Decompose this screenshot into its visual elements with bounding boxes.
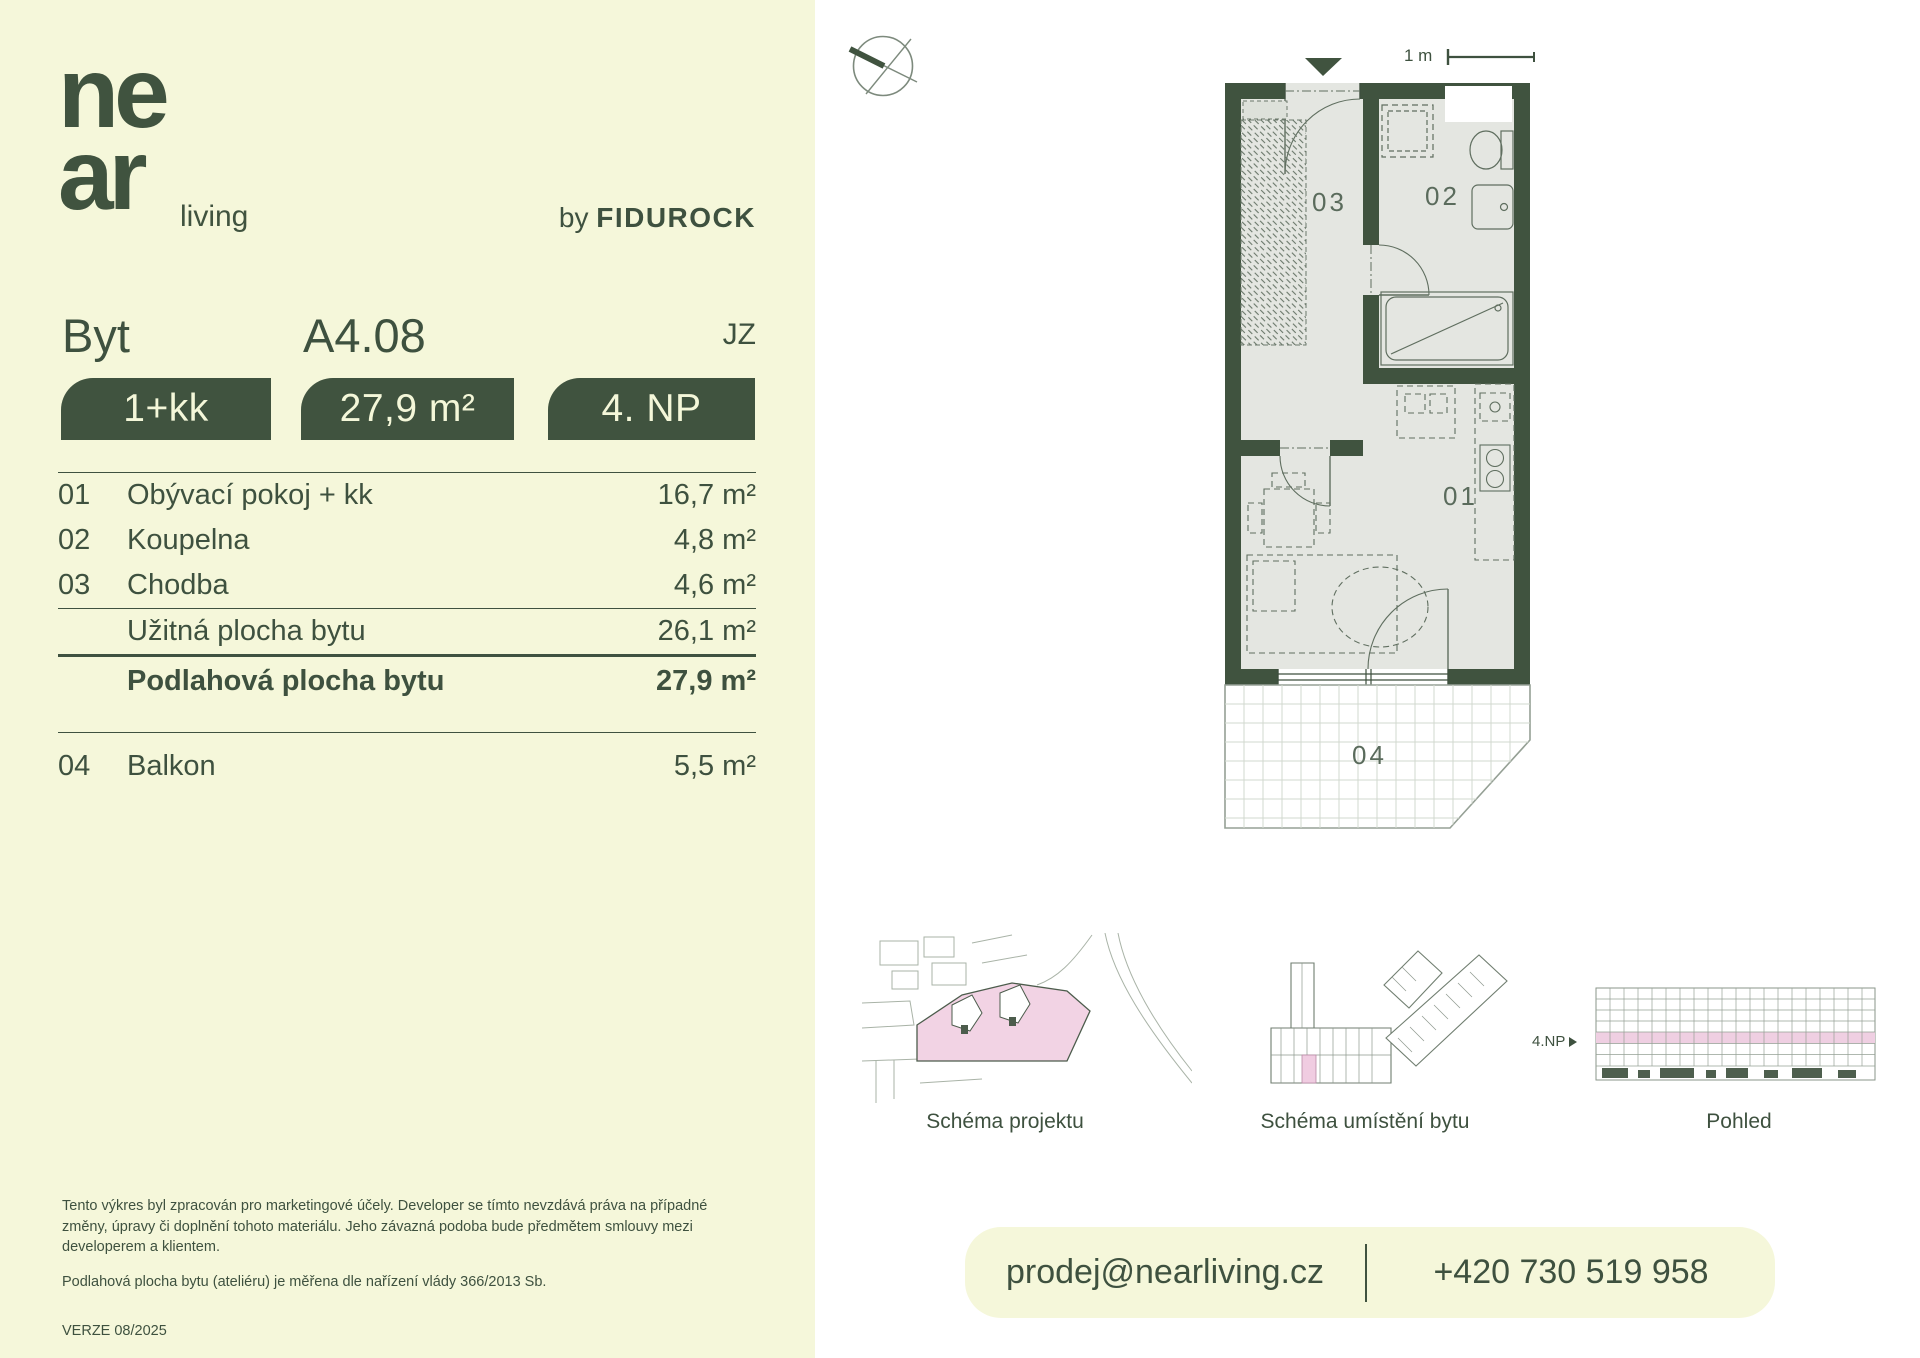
disclaimer: Tento výkres byl zpracován pro marketing…: [62, 1196, 720, 1342]
floor-marker: 4.NP: [1532, 1033, 1577, 1050]
room-name: Koupelna: [127, 524, 674, 557]
unit-location-schematic: [1266, 943, 1511, 1111]
orientation-label: JZ: [0, 318, 756, 352]
room-name: Chodba: [127, 569, 674, 602]
room-number: 04: [58, 750, 127, 783]
wardrobe: [1241, 120, 1306, 345]
contact-bar: prodej@nearliving.cz +420 730 519 958: [965, 1227, 1775, 1318]
label-room-03: 03: [1312, 187, 1347, 217]
near-logo: ne ar: [58, 52, 165, 216]
floor-area-value: 27,9 m²: [656, 665, 756, 698]
usable-area-label: Užitná plocha bytu: [127, 615, 658, 648]
site-plan-schematic: [862, 933, 1192, 1105]
apartment-datasheet: ne ar living by FIDUROCK Byt A4.08 JZ 1+…: [0, 0, 1920, 1358]
area-table: 01 Obývací pokoj + kk 16,7 m² 02 Koupeln…: [58, 472, 756, 791]
label-room-02: 02: [1425, 181, 1460, 211]
room-area: 4,8 m²: [674, 524, 756, 557]
floor-area-label: Podlahová plocha bytu: [127, 665, 656, 698]
table-row: 01 Obývací pokoj + kk 16,7 m²: [58, 473, 756, 518]
compass-icon: [845, 30, 925, 102]
schematic-caption: Pohled: [1614, 1110, 1864, 1134]
version-label: VERZE 08/2025: [62, 1321, 720, 1342]
badge-layout: 1+kk: [61, 378, 271, 440]
info-panel: ne ar living by FIDUROCK Byt A4.08 JZ 1+…: [0, 0, 815, 1358]
entrance-arrow-icon: [1305, 58, 1342, 76]
floor-area-row: Podlahová plocha bytu 27,9 m²: [58, 657, 756, 705]
floor-plan: 01 02 03 04: [1218, 55, 1538, 845]
table-row: 03 Chodba 4,6 m²: [58, 563, 756, 608]
room-name: Balkon: [127, 750, 674, 783]
badge-floor: 4. NP: [548, 378, 755, 440]
room-name: Obývací pokoj + kk: [127, 479, 658, 512]
floor-marker-label: 4.NP: [1532, 1033, 1565, 1050]
room-number: 03: [58, 569, 127, 602]
label-room-01: 01: [1443, 481, 1478, 511]
schematic-caption: Schéma projektu: [880, 1110, 1130, 1134]
room-area: 5,5 m²: [674, 750, 756, 783]
room-area: 4,6 m²: [674, 569, 756, 602]
usable-area-row: Užitná plocha bytu 26,1 m²: [58, 609, 756, 654]
unit-highlight: [1302, 1055, 1316, 1083]
room-number: 01: [58, 479, 127, 512]
byline: by FIDUROCK: [0, 202, 756, 234]
label-room-04: 04: [1352, 740, 1387, 770]
byline-prefix: by: [559, 202, 589, 233]
usable-area-value: 26,1 m²: [658, 615, 756, 648]
table-row: 02 Koupelna 4,8 m²: [58, 518, 756, 563]
byline-brand: FIDUROCK: [596, 202, 756, 233]
schematic-caption: Schéma umístění bytu: [1240, 1110, 1490, 1134]
elevation-schematic: [1594, 980, 1879, 1085]
shoe-cabinet: [1243, 101, 1287, 119]
contact-email[interactable]: prodej@nearliving.cz: [1006, 1253, 1324, 1292]
contact-phone[interactable]: +420 730 519 958: [1433, 1253, 1708, 1292]
badge-area: 27,9 m²: [301, 378, 514, 440]
right-arrow-icon: [1569, 1037, 1577, 1047]
room-area: 16,7 m²: [658, 479, 756, 512]
disclaimer-paragraph: Tento výkres byl zpracován pro marketing…: [62, 1196, 720, 1258]
room-number: 02: [58, 524, 127, 557]
installation-shaft: [1445, 86, 1512, 122]
balcony-row: 04 Balkon 5,5 m²: [58, 733, 756, 791]
measurement-note: Podlahová plocha bytu (ateliéru) je měře…: [62, 1272, 720, 1293]
